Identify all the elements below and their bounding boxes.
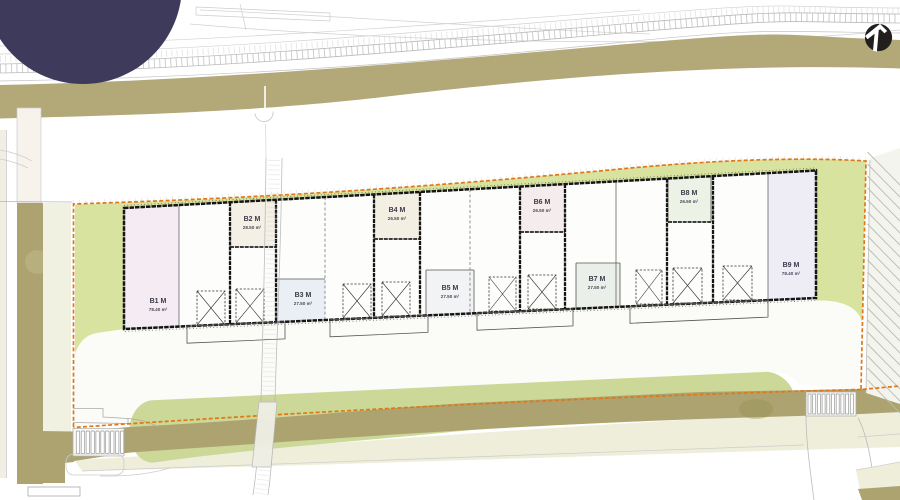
svg-text:B8 M: B8 M xyxy=(681,190,698,197)
svg-text:78.40 m²: 78.40 m² xyxy=(782,271,801,276)
svg-text:B3 M: B3 M xyxy=(295,292,312,299)
svg-text:B5 M: B5 M xyxy=(442,285,459,292)
svg-text:B2 M: B2 M xyxy=(244,216,261,223)
svg-text:78.40 m²: 78.40 m² xyxy=(149,307,168,312)
svg-text:B9 M: B9 M xyxy=(783,262,800,269)
svg-text:B7 M: B7 M xyxy=(589,276,606,283)
svg-text:B4 M: B4 M xyxy=(389,207,406,214)
svg-text:B1 M: B1 M xyxy=(150,298,167,305)
svg-text:28.50 m²: 28.50 m² xyxy=(243,225,262,230)
svg-text:26.50 m²: 26.50 m² xyxy=(388,216,407,221)
svg-text:27.50 m²: 27.50 m² xyxy=(294,301,313,306)
svg-text:27.50 m²: 27.50 m² xyxy=(441,294,460,299)
svg-text:B6 M: B6 M xyxy=(534,199,551,206)
svg-text:26.50 m²: 26.50 m² xyxy=(680,199,699,204)
svg-text:26.50 m²: 26.50 m² xyxy=(533,208,552,213)
svg-text:27.50 m²: 27.50 m² xyxy=(588,285,607,290)
